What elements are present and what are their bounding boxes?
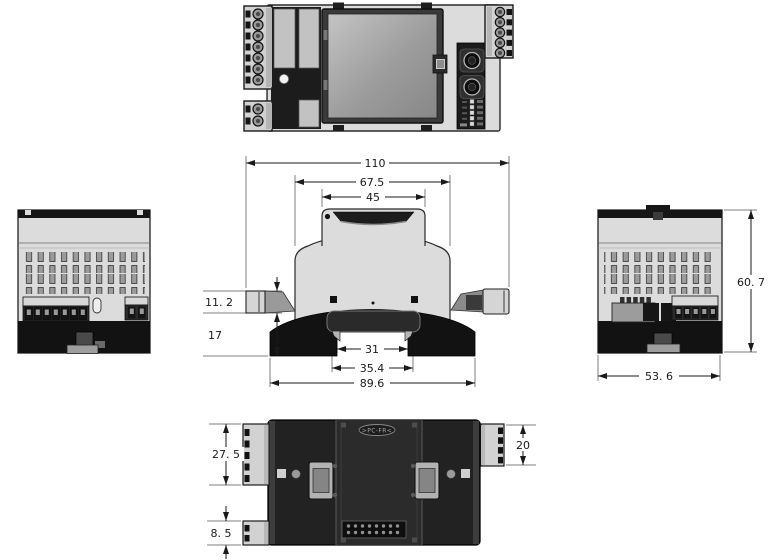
dim-housing-depth: 53. 6 [645, 370, 673, 383]
side-tab-right [451, 289, 509, 314]
vent-slots [25, 274, 145, 294]
bottom-view: >PC-FR< [207, 420, 536, 559]
dim-connector-tab-height: 11. 2 [205, 296, 233, 309]
vent-slots [604, 252, 716, 273]
door-hinge [324, 30, 328, 40]
dim-overall-depth: 60. 7 [737, 276, 765, 289]
front-right-panel [457, 43, 485, 129]
dim-din-notch-width: 31 [365, 343, 379, 356]
dim-din-clip-width: 35.4 [360, 362, 385, 375]
side-tab-left [246, 291, 295, 313]
side-terminal-strip [672, 296, 718, 320]
bottom-terminal-lower-left [243, 521, 269, 545]
side-terminal-strip [23, 297, 89, 321]
left-side-view [18, 210, 150, 354]
front-button [279, 74, 288, 83]
right-side-view: 60. 7 53. 6 [598, 205, 768, 383]
dimension-drawing: 110 67.5 45 31 35.4 89.6 11. 2 17 [0, 0, 768, 560]
bottom-terminal-upper-left [243, 424, 269, 485]
side-terminal-small [125, 297, 148, 320]
top-view: 110 67.5 45 31 35.4 89.6 11. 2 17 [203, 156, 509, 390]
dim-cap-width: 45 [366, 191, 380, 204]
latch-clip-left [309, 462, 337, 499]
material-marking: >PC-FR< [362, 428, 392, 435]
terminal-block-left-lower [244, 101, 272, 131]
latch-clip-right [411, 462, 439, 499]
front-view [244, 3, 513, 132]
front-door [322, 3, 447, 132]
din-rail-slot [327, 311, 420, 332]
dim-housing-width: 67.5 [360, 176, 385, 189]
terminal-block-right [485, 5, 513, 58]
dim-upper-terminal-depth: 27. 5 [212, 448, 240, 461]
dim-right-terminal-depth: 20 [516, 439, 530, 452]
dim-overall-width: 110 [365, 157, 386, 170]
pin-connector [342, 521, 406, 538]
vent-slots [25, 252, 145, 273]
dim-lower-terminal-depth: 8. 5 [211, 527, 232, 540]
technical-drawing-canvas: 110 67.5 45 31 35.4 89.6 11. 2 17 [0, 0, 768, 560]
dim-base-section-height: 17 [208, 329, 222, 342]
dim-base-width: 89.6 [360, 377, 385, 390]
bottom-terminal-right [481, 424, 504, 466]
keyhole-slot [93, 298, 101, 313]
vent-slots [604, 274, 716, 294]
door-hinge [324, 80, 328, 90]
door-window [328, 14, 437, 118]
terminal-block-left-upper [244, 6, 272, 89]
